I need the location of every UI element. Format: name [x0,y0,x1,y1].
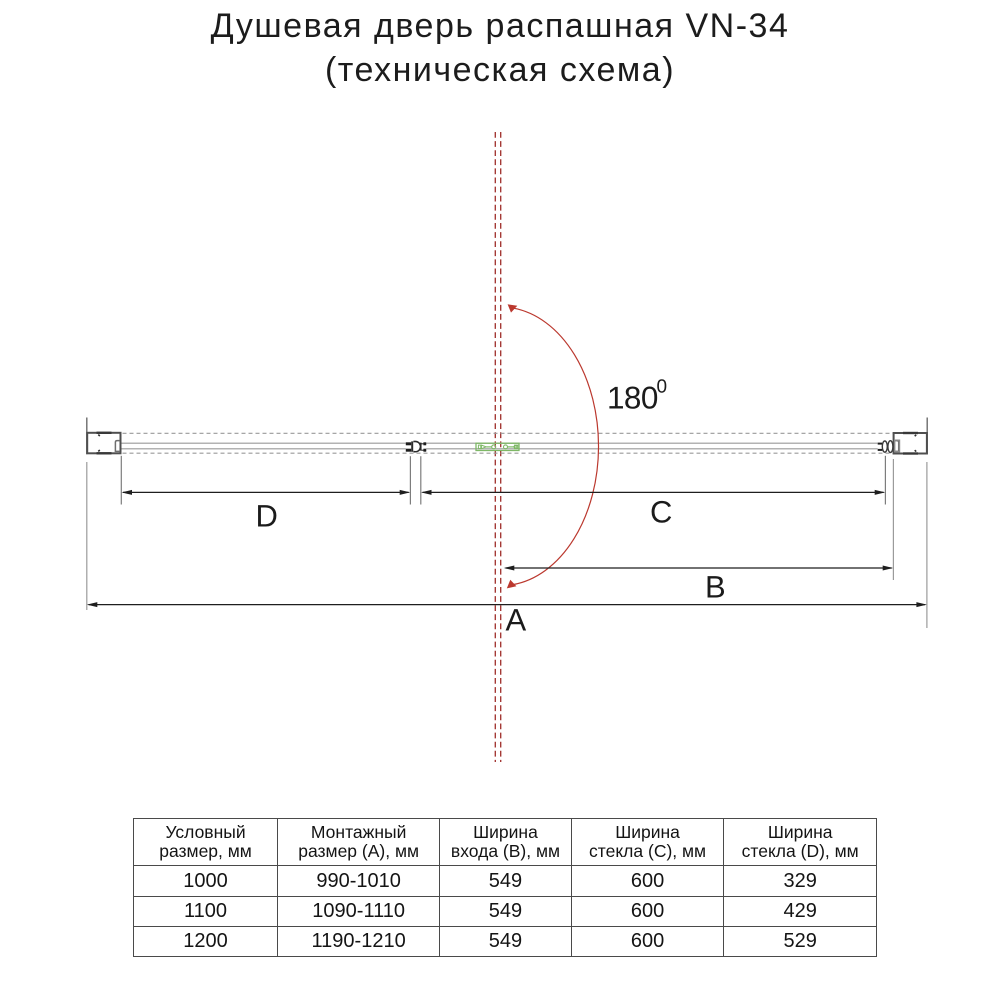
svg-text:A: A [506,603,527,638]
svg-text:D: D [256,499,278,534]
svg-text:180: 180 [607,380,658,416]
svg-text:C: C [650,495,672,530]
svg-text:0: 0 [657,377,668,398]
svg-text:B: B [705,570,726,605]
